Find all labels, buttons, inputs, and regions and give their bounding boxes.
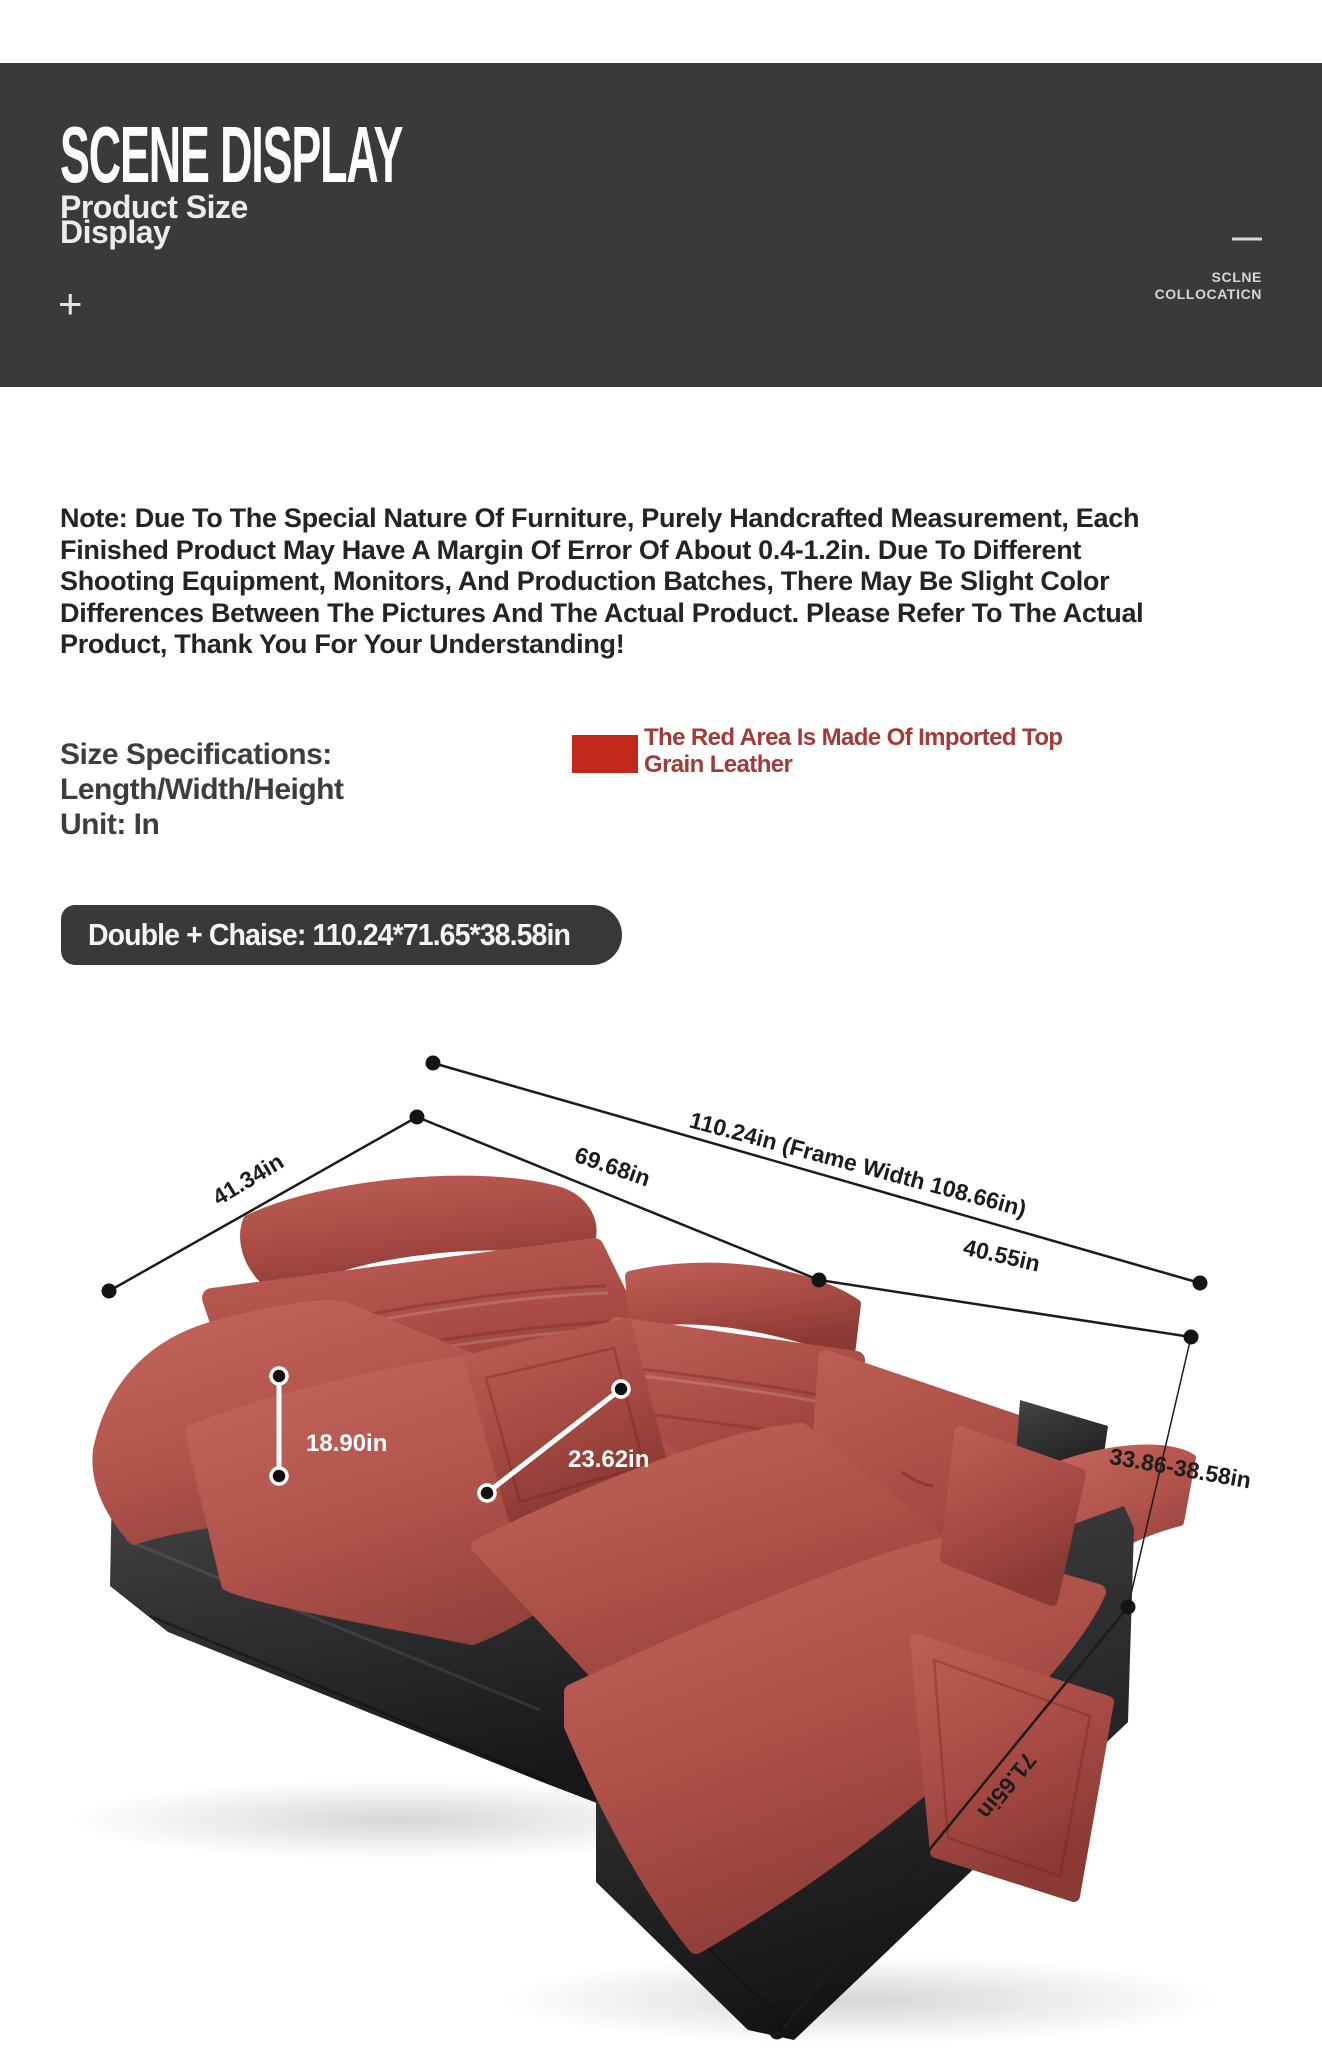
corner-watermark-line1: SCLNE: [1155, 269, 1262, 286]
product-size-page: SCENE DISPLAY Product Size Display + — S…: [0, 0, 1322, 2048]
size-specifications: Size Specifications: Length/Width/Height…: [60, 737, 344, 842]
sofa-illustration: [70, 1181, 1220, 2044]
variant-badge: Double + Chaise: 110.24*71.65*38.58in: [61, 905, 622, 965]
size-specs-line3: Unit: In: [60, 807, 344, 842]
leather-callout: The Red Area Is Made Of Imported Top Gra…: [644, 724, 1062, 778]
note-line: Shooting Equipment, Monitors, And Produc…: [60, 566, 1143, 598]
sofa-dimension-diagram: 110.24in (Frame Width 108.66in) 69.68in …: [0, 980, 1322, 2048]
size-specs-line1: Size Specifications:: [60, 737, 344, 772]
page-subtitle: Product Size Display: [60, 195, 248, 245]
label-side-depth: 41.34in: [208, 1148, 288, 1210]
label-seat-height: 18.90in: [306, 1430, 387, 1457]
note-line: Note: Due To The Special Nature Of Furni…: [60, 503, 1143, 535]
red-swatch-rect: [572, 735, 638, 773]
note-line: Finished Product May Have A Margin Of Er…: [60, 535, 1143, 567]
leather-callout-line1: The Red Area Is Made Of Imported Top: [644, 724, 1062, 751]
leather-callout-line2: Grain Leather: [644, 751, 1062, 778]
label-back-width-right: 40.55in: [961, 1234, 1043, 1277]
measurement-note: Note: Due To The Special Nature Of Furni…: [60, 503, 1143, 661]
note-line: Product, Thank You For Your Understandin…: [60, 629, 1143, 661]
page-title: SCENE DISPLAY: [60, 115, 402, 195]
hero-banner: SCENE DISPLAY Product Size Display + — S…: [0, 63, 1322, 387]
label-seat-depth: 23.62in: [568, 1446, 649, 1473]
variant-badge-label: Double + Chaise: 110.24*71.65*38.58in: [88, 917, 570, 953]
label-overall-width: 110.24in (Frame Width 108.66in): [687, 1107, 1029, 1222]
plus-icon: +: [58, 283, 83, 325]
dimension-line-back-width-right: [819, 1280, 1191, 1337]
note-line: Differences Between The Pictures And The…: [60, 598, 1143, 630]
minus-icon: —: [1232, 223, 1262, 253]
corner-watermark-line2: COLLOCATICN: [1155, 286, 1262, 303]
size-specs-line2: Length/Width/Height: [60, 772, 344, 807]
corner-watermark: SCLNE COLLOCATICN: [1155, 269, 1262, 303]
red-leather-swatch: [572, 735, 638, 773]
